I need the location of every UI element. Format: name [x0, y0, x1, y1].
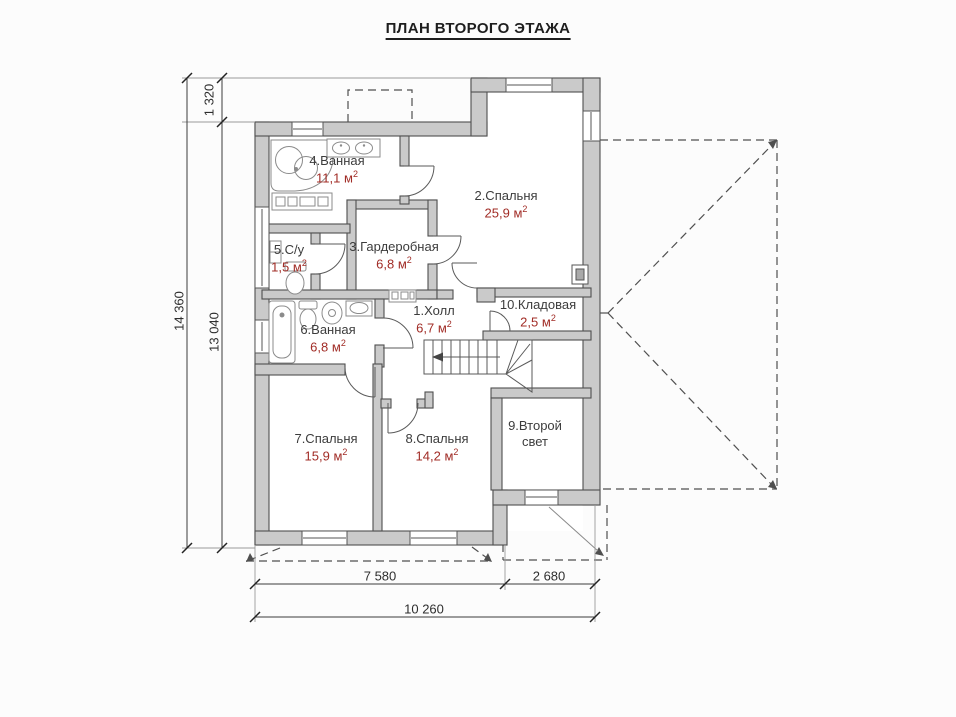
- counter-sink-icon: [346, 301, 372, 316]
- room-label-wardrobe: 3.Гардеробная 6,8 м2: [349, 239, 438, 273]
- page-title: ПЛАН ВТОРОГО ЭТАЖА: [386, 20, 571, 40]
- dim-bottom-main: 7 580: [364, 569, 397, 584]
- room-name: 5.С/у: [271, 242, 307, 258]
- dim-left-main: 13 040: [207, 312, 222, 352]
- room-label-bathroom6: 6.Ванная 6,8 м2: [300, 322, 355, 356]
- room-label-bedroom2: 2.Спальня 25,9 м2: [474, 188, 537, 222]
- room-label-bedroom7: 7.Спальня 15,9 м2: [294, 431, 357, 465]
- room-label-bedroom8: 8.Спальня 14,2 м2: [405, 431, 468, 465]
- room-name: 6.Ванная: [300, 322, 355, 338]
- chimney-outline: [348, 90, 412, 122]
- room-name: 9.Второй свет: [502, 418, 568, 451]
- room-area: 11,1 м2: [309, 169, 364, 187]
- dim-bottom-right: 2 680: [533, 569, 566, 584]
- room-name: 4.Ванная: [309, 153, 364, 169]
- room-area: 6,8 м2: [349, 255, 438, 273]
- room-name: 3.Гардеробная: [349, 239, 438, 255]
- bathroom-cabinet-icon: [272, 193, 332, 210]
- floor-plan-drawing: [0, 0, 956, 717]
- dim-left-total: 14 360: [172, 291, 187, 331]
- room-label-wc: 5.С/у 1,5 м2: [271, 242, 307, 276]
- bathtub-icon: [269, 301, 295, 363]
- floor-plan-page: ПЛАН ВТОРОГО ЭТАЖА: [0, 0, 956, 717]
- room-area: 1,5 м2: [271, 258, 307, 276]
- room-area: 6,7 м2: [413, 319, 454, 337]
- room-name: 2.Спальня: [474, 188, 537, 204]
- room-name: 10.Кладовая: [500, 297, 576, 313]
- room-label-hall: 1.Холл 6,7 м2: [413, 303, 454, 337]
- pedestal-sink-icon: [322, 302, 342, 324]
- room-name: 1.Холл: [413, 303, 454, 319]
- room-label-bathroom4: 4.Ванная 11,1 м2: [309, 153, 364, 187]
- room-name: 7.Спальня: [294, 431, 357, 447]
- hall-cabinet-icon: [389, 290, 416, 302]
- room-area: 2,5 м2: [500, 313, 576, 331]
- room-label-second-light: 9.Второй свет: [502, 418, 568, 451]
- wall-niche-icon: [572, 265, 588, 284]
- room-area: 15,9 м2: [294, 447, 357, 465]
- room-label-storage: 10.Кладовая 2,5 м2: [500, 297, 576, 331]
- dim-left-top: 1 320: [202, 84, 217, 117]
- room-area: 14,2 м2: [405, 447, 468, 465]
- dim-bottom-total: 10 260: [404, 602, 444, 617]
- room-name: 8.Спальня: [405, 431, 468, 447]
- room-area: 25,9 м2: [474, 204, 537, 222]
- room-area: 6,8 м2: [300, 338, 355, 356]
